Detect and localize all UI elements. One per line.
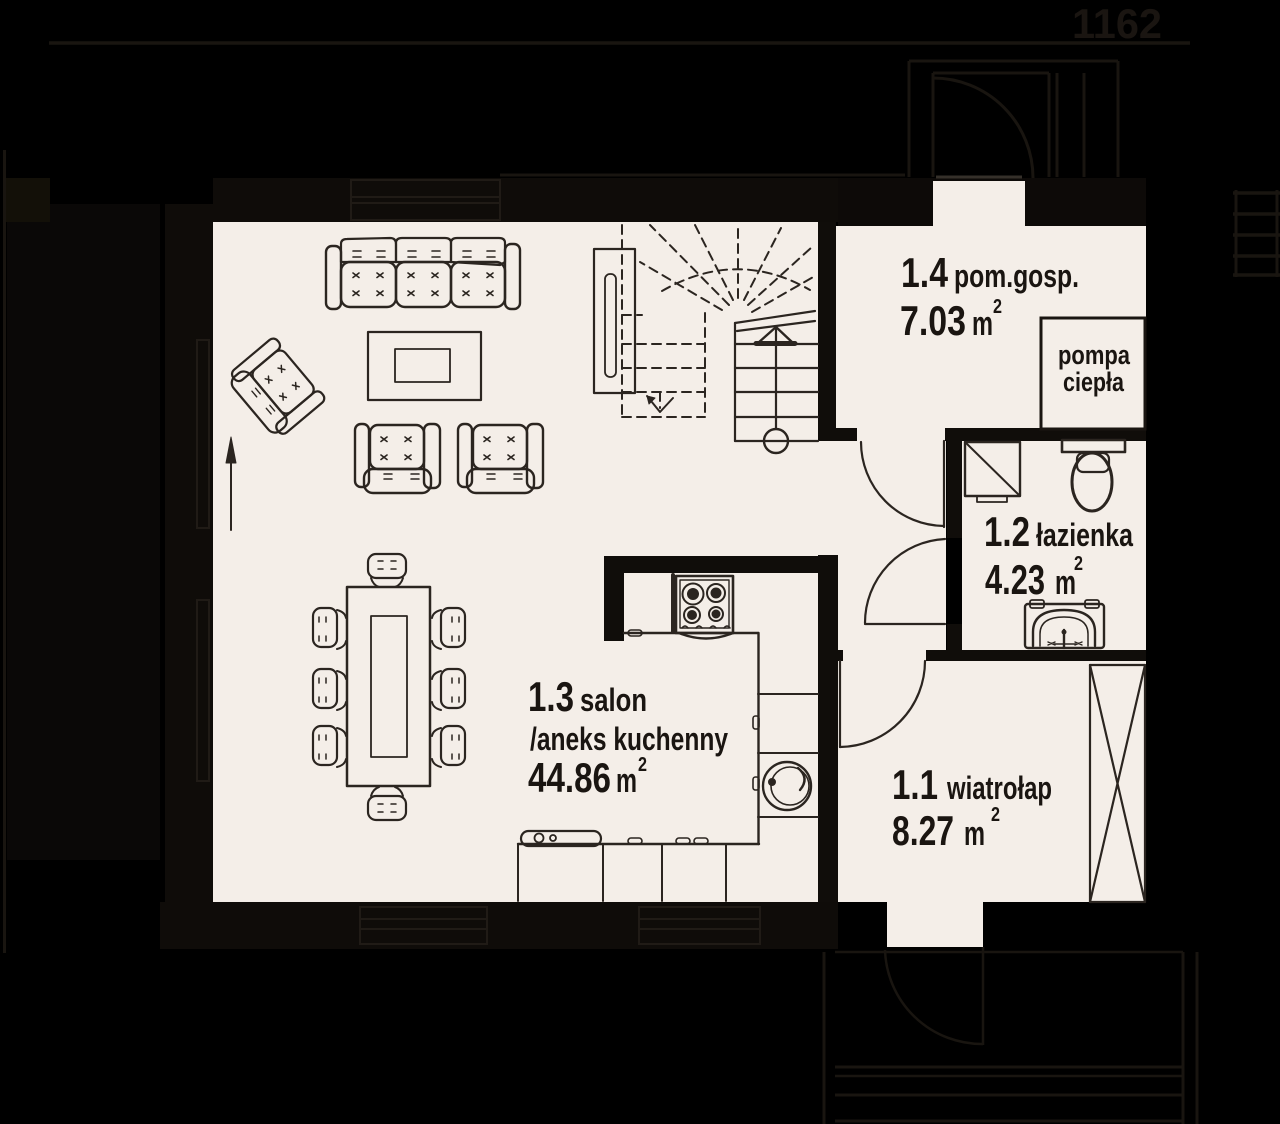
svg-text:pom.gosp.: pom.gosp. (954, 258, 1079, 294)
svg-text:2: 2 (991, 804, 1000, 826)
svg-text:2: 2 (993, 296, 1002, 318)
svg-text:m: m (972, 305, 993, 343)
svg-text:1.1: 1.1 (892, 761, 938, 808)
svg-text:m: m (964, 815, 985, 853)
svg-text:pompa: pompa (1058, 340, 1131, 370)
svg-text:/aneks kuchenny: /aneks kuchenny (530, 721, 728, 757)
svg-text:m: m (616, 762, 637, 800)
svg-text:1162: 1162 (1072, 0, 1162, 47)
svg-text:8.27: 8.27 (892, 807, 954, 854)
svg-text:wiatrołap: wiatrołap (946, 770, 1052, 806)
svg-text:1.3: 1.3 (528, 673, 574, 720)
svg-text:7.03: 7.03 (900, 297, 966, 344)
svg-text:2: 2 (638, 754, 647, 776)
svg-text:łazienka: łazienka (1036, 517, 1133, 553)
svg-text:44.86: 44.86 (528, 754, 611, 801)
svg-text:ciepła: ciepła (1063, 367, 1125, 397)
svg-text:m: m (1055, 564, 1076, 602)
svg-text:1.2: 1.2 (984, 508, 1030, 555)
svg-text:2: 2 (1074, 553, 1083, 575)
svg-text:salon: salon (580, 682, 647, 718)
svg-text:1.4: 1.4 (901, 249, 949, 296)
svg-text:4.23: 4.23 (985, 556, 1045, 603)
